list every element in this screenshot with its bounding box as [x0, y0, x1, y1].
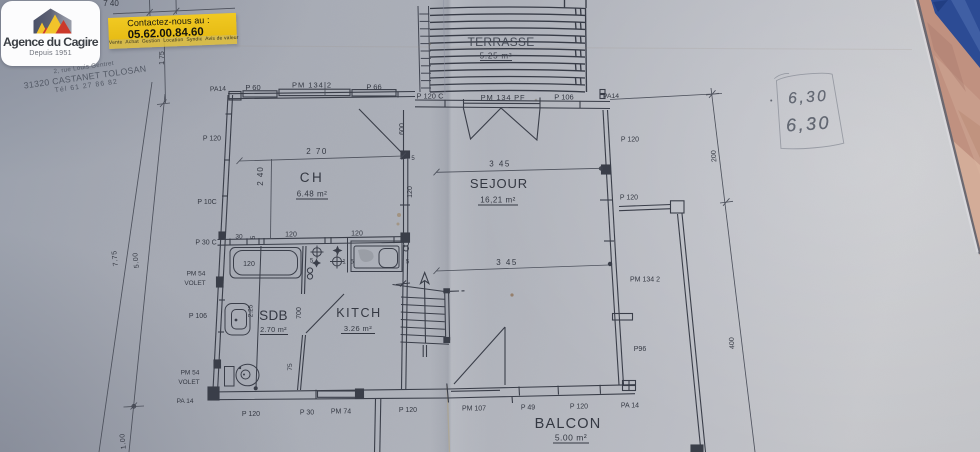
svg-text:1 75: 1 75: [159, 51, 166, 65]
svg-text:P 30 C: P 30 C: [195, 240, 216, 247]
svg-text:30: 30: [235, 234, 243, 241]
svg-text:PM 134 PF: PM 134 PF: [481, 93, 526, 102]
svg-text:PM 54: PM 54: [181, 370, 200, 377]
svg-text:120: 120: [243, 261, 255, 268]
svg-text:P 120: P 120: [620, 195, 638, 202]
svg-text:P 120: P 120: [570, 404, 588, 411]
svg-text:CH: CH: [300, 170, 325, 185]
svg-text:16,21 m²: 16,21 m²: [480, 196, 516, 205]
svg-text:P 60: P 60: [245, 83, 260, 92]
svg-text:P 120 C: P 120 C: [417, 92, 445, 101]
svg-text:2 70: 2 70: [306, 147, 328, 156]
svg-text:2.70 m²: 2.70 m²: [260, 325, 287, 334]
svg-text:3 45: 3 45: [489, 160, 511, 169]
svg-text:P 106: P 106: [189, 313, 207, 320]
svg-text:6.48 m²: 6.48 m²: [297, 190, 328, 199]
svg-text:5.00 m²: 5.00 m²: [555, 433, 587, 443]
svg-text:P 120: P 120: [621, 137, 639, 144]
svg-text:120: 120: [407, 186, 414, 198]
svg-text:600: 600: [399, 123, 406, 135]
svg-text:3.26 m²: 3.26 m²: [344, 324, 372, 333]
svg-text:2.25: 2.25: [248, 304, 255, 317]
svg-text:PM 134 2: PM 134 2: [630, 277, 660, 284]
svg-text:VOLET: VOLET: [178, 379, 199, 386]
svg-text:6,30: 6,30: [785, 112, 831, 135]
svg-text:PA 14: PA 14: [177, 398, 194, 405]
svg-text:P 66: P 66: [366, 83, 381, 92]
svg-text:P 120: P 120: [242, 411, 260, 418]
svg-text:PM 134 2: PM 134 2: [292, 81, 332, 90]
svg-text:VOLET: VOLET: [184, 280, 205, 287]
svg-text:PM 107: PM 107: [462, 406, 486, 413]
svg-text:2 40: 2 40: [256, 166, 265, 186]
svg-text:PA 14: PA 14: [621, 403, 639, 410]
svg-text:200: 200: [711, 150, 719, 162]
svg-text:PA14: PA14: [210, 86, 227, 94]
svg-text:PM 74: PM 74: [331, 409, 351, 416]
svg-text:BALCON: BALCON: [535, 416, 602, 432]
svg-text:SDB: SDB: [259, 308, 288, 323]
svg-text:PM 54: PM 54: [187, 271, 206, 278]
svg-text:120: 120: [285, 232, 297, 239]
svg-text:P 10C: P 10C: [197, 199, 216, 206]
svg-text:P 106: P 106: [554, 93, 573, 102]
svg-text:PA14: PA14: [603, 93, 619, 100]
svg-text:P 120: P 120: [203, 136, 221, 143]
svg-text:P 120: P 120: [399, 407, 417, 414]
svg-text:75: 75: [287, 363, 294, 371]
svg-text:SEJOUR: SEJOUR: [470, 176, 528, 191]
svg-text:700: 700: [296, 307, 303, 319]
svg-text:5.25 m²: 5.25 m²: [480, 52, 513, 61]
svg-text:400: 400: [729, 337, 737, 349]
svg-text:120: 120: [351, 231, 363, 238]
svg-text:P96: P96: [634, 346, 647, 353]
svg-text:P 49: P 49: [521, 405, 535, 412]
svg-text:KITCH: KITCH: [336, 306, 382, 320]
svg-text:6,30: 6,30: [788, 88, 829, 108]
svg-text:P 30: P 30: [300, 410, 314, 417]
svg-text:3 45: 3 45: [496, 258, 518, 267]
svg-text:7 40: 7 40: [103, 0, 119, 8]
